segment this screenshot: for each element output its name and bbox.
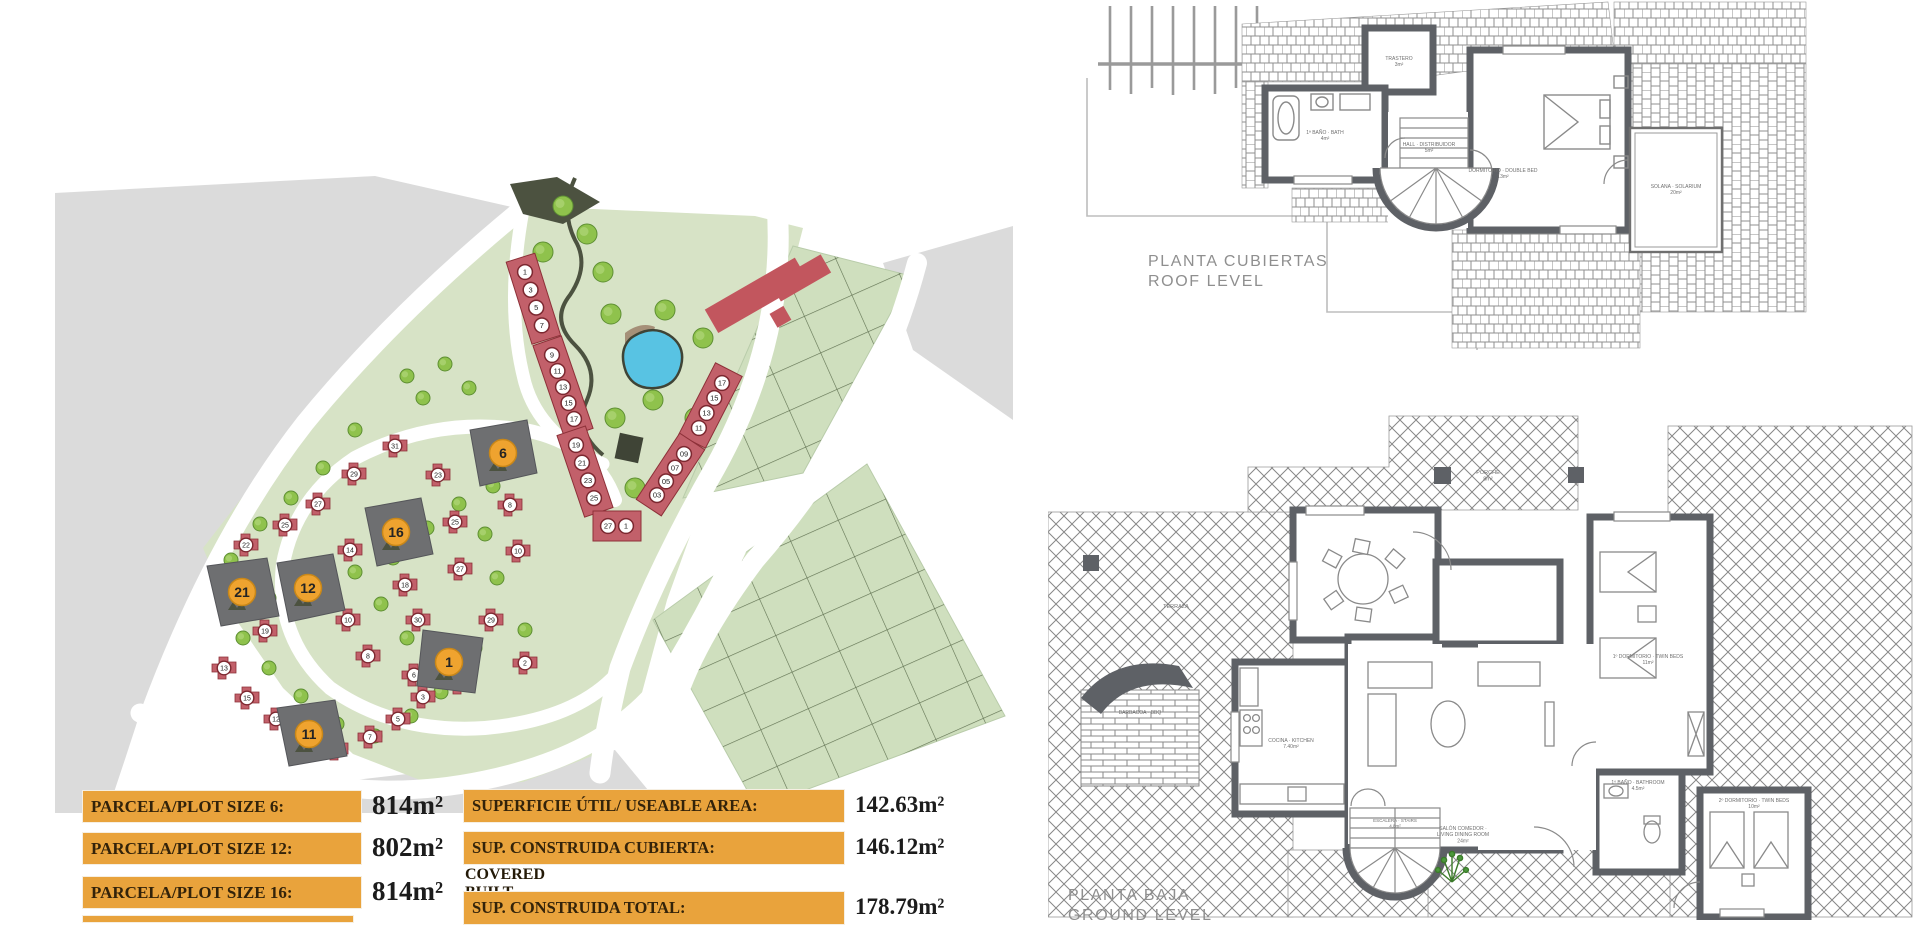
villa-number: 23 [434, 472, 442, 479]
tree-icon [452, 497, 466, 511]
villa-number: 5 [396, 716, 400, 723]
villa-number: 8 [366, 653, 370, 660]
table-row: PARCELA/PLOT SIZE 12:802m² [82, 832, 443, 865]
featured-plot: 16 [365, 498, 433, 566]
villa-number: 29 [487, 617, 495, 624]
tree-icon [294, 689, 308, 703]
tree-icon [236, 631, 250, 645]
table-row: SUPERFICIE ÚTIL/ USEABLE AREA:142.63m² [463, 789, 944, 823]
room-label: TERRAZA [1163, 604, 1189, 610]
tree-icon [284, 491, 298, 505]
tree-icon [693, 328, 713, 348]
villa-number: 2 [523, 660, 527, 667]
tree-icon [374, 597, 388, 611]
villa-number: 27 [314, 501, 322, 508]
villa-number: 6 [412, 672, 416, 679]
plan-sheet: { "site_plan": { "featured_plots": ["6",… [0, 0, 1920, 920]
table-row-value: 178.79m² [845, 891, 944, 923]
tree-icon [605, 408, 625, 428]
townhouse-number: 19 [572, 441, 580, 450]
townhouse-block: 271 [593, 511, 641, 541]
ground-plan-title-en: GROUND LEVEL [1068, 906, 1213, 926]
table-row-value: 802m² [362, 832, 443, 863]
pond [623, 330, 682, 388]
townhouse-number: 21 [578, 458, 586, 467]
villa-number: 10 [344, 617, 352, 624]
featured-plot-number: 6 [499, 445, 507, 461]
tree-icon [400, 631, 414, 645]
featured-plot-number: 1 [445, 654, 453, 670]
villa-number: 25 [451, 519, 459, 526]
table-row-partial [82, 915, 354, 923]
townhouse-number: 7 [540, 321, 544, 330]
townhouse-number: 17 [718, 379, 726, 388]
townhouse-number: 11 [695, 424, 703, 433]
bbq-terrace [1081, 663, 1199, 786]
townhouse-number: 1 [523, 268, 527, 277]
tree-icon [601, 304, 621, 324]
tree-icon [643, 390, 663, 410]
townhouse-number: 03 [653, 491, 661, 500]
townhouse-number: 17 [570, 415, 578, 424]
ground-level-plan: TERRAZABARBACOA · BBQPORCHE8m²COCINA · K… [1048, 412, 1920, 920]
featured-plot: 1 [417, 630, 483, 693]
townhouse-number: 11 [554, 367, 562, 376]
table-row-label: PARCELA/PLOT SIZE 12: [82, 832, 362, 865]
featured-plot-number: 21 [234, 584, 250, 600]
villa-number: 14 [346, 547, 354, 554]
tree-icon [478, 527, 492, 541]
townhouse-number: 07 [671, 463, 679, 472]
townhouse-number: 3 [529, 285, 533, 294]
townhouse-number: 09 [680, 450, 688, 459]
table-row-value: 146.12m² [845, 831, 944, 863]
tree-icon [593, 262, 613, 282]
villa-number: 27 [456, 566, 464, 573]
townhouse-number: 23 [584, 476, 592, 485]
tree-icon [462, 381, 476, 395]
roof-level-plan: TRASTERO3m²1ª BAÑO · BATH4m²HALL · DISTR… [1048, 0, 1920, 352]
room-label: BARBACOA · BBQ [1119, 710, 1162, 716]
villa-number: 30 [414, 617, 422, 624]
tree-icon [348, 565, 362, 579]
townhouse-number: 1 [624, 522, 628, 531]
table-row-value: 814m² [362, 790, 443, 821]
villa-plot: 15 [235, 687, 259, 709]
villa-number: 7 [368, 734, 372, 741]
villa-plot: 13 [212, 657, 236, 679]
villa-number: 19 [261, 628, 269, 635]
table-row: PARCELA/PLOT SIZE 6:814m² [82, 790, 443, 823]
villa-number: 25 [281, 522, 289, 529]
ground-plan-title: PLANTA BAJA GROUND LEVEL [1068, 886, 1213, 926]
townhouse-number: 15 [564, 399, 572, 408]
featured-plot-number: 16 [388, 524, 404, 540]
tree-icon [416, 391, 430, 405]
tree-icon [316, 461, 330, 475]
townhouse-number: 25 [590, 494, 598, 503]
ground-plan-title-es: PLANTA BAJA [1068, 886, 1213, 906]
roof-plan-title: PLANTA CUBIERTAS ROOF LEVEL [1148, 252, 1328, 292]
townhouse-number: 13 [559, 383, 567, 392]
featured-plot: 21 [207, 558, 279, 626]
townhouse-number: 5 [534, 303, 538, 312]
tree-icon [655, 300, 675, 320]
townhouse-number: 13 [702, 409, 710, 418]
villa-number: 3 [421, 694, 425, 701]
tree-icon [490, 571, 504, 585]
table-row-value: 814m² [362, 876, 443, 907]
tree-icon [253, 517, 267, 531]
villa-number: 22 [242, 542, 250, 549]
table-row-label: PARCELA/PLOT SIZE 16: [82, 876, 362, 909]
site-master-plan: 1357911131517192123252711715131109070503… [55, 168, 1013, 813]
tree-icon [262, 661, 276, 675]
villa-number: 31 [391, 443, 399, 450]
tree-icon [348, 423, 362, 437]
tree-icon [438, 357, 452, 371]
villa-number: 13 [220, 665, 228, 672]
table-row: SUP. CONSTRUIDA CUBIERTA:146.12m² [463, 831, 944, 865]
townhouse-number: 9 [550, 351, 554, 360]
table-row-label: SUP. CONSTRUIDA CUBIERTA: [463, 831, 845, 865]
tree-icon [400, 369, 414, 383]
tree-icon [553, 196, 573, 216]
table-row-label: PARCELA/PLOT SIZE 6: [82, 790, 362, 823]
table-row-label: SUPERFICIE ÚTIL/ USEABLE AREA: [463, 789, 845, 823]
townhouse-number: 15 [710, 394, 718, 403]
villa-number: 8 [508, 502, 512, 509]
featured-plot-number: 11 [302, 726, 317, 742]
villa-number: 29 [350, 471, 358, 478]
villa-number: 18 [401, 582, 409, 589]
featured-plot: 12 [277, 554, 345, 622]
table-row-value: 142.63m² [845, 789, 944, 821]
townhouse-number: 27 [604, 522, 612, 531]
tree-icon [577, 224, 597, 244]
featured-plot-number: 12 [300, 580, 316, 596]
roof-plan-title-es: PLANTA CUBIERTAS [1148, 252, 1328, 272]
tree-icon [518, 623, 532, 637]
villa-number: 10 [514, 548, 522, 555]
featured-plot: 11 [277, 700, 347, 766]
townhouse-number: 05 [662, 477, 670, 486]
roof-plan-title-en: ROOF LEVEL [1148, 272, 1328, 292]
villa-number: 15 [243, 695, 251, 702]
table-row: PARCELA/PLOT SIZE 16:814m² [82, 876, 443, 909]
